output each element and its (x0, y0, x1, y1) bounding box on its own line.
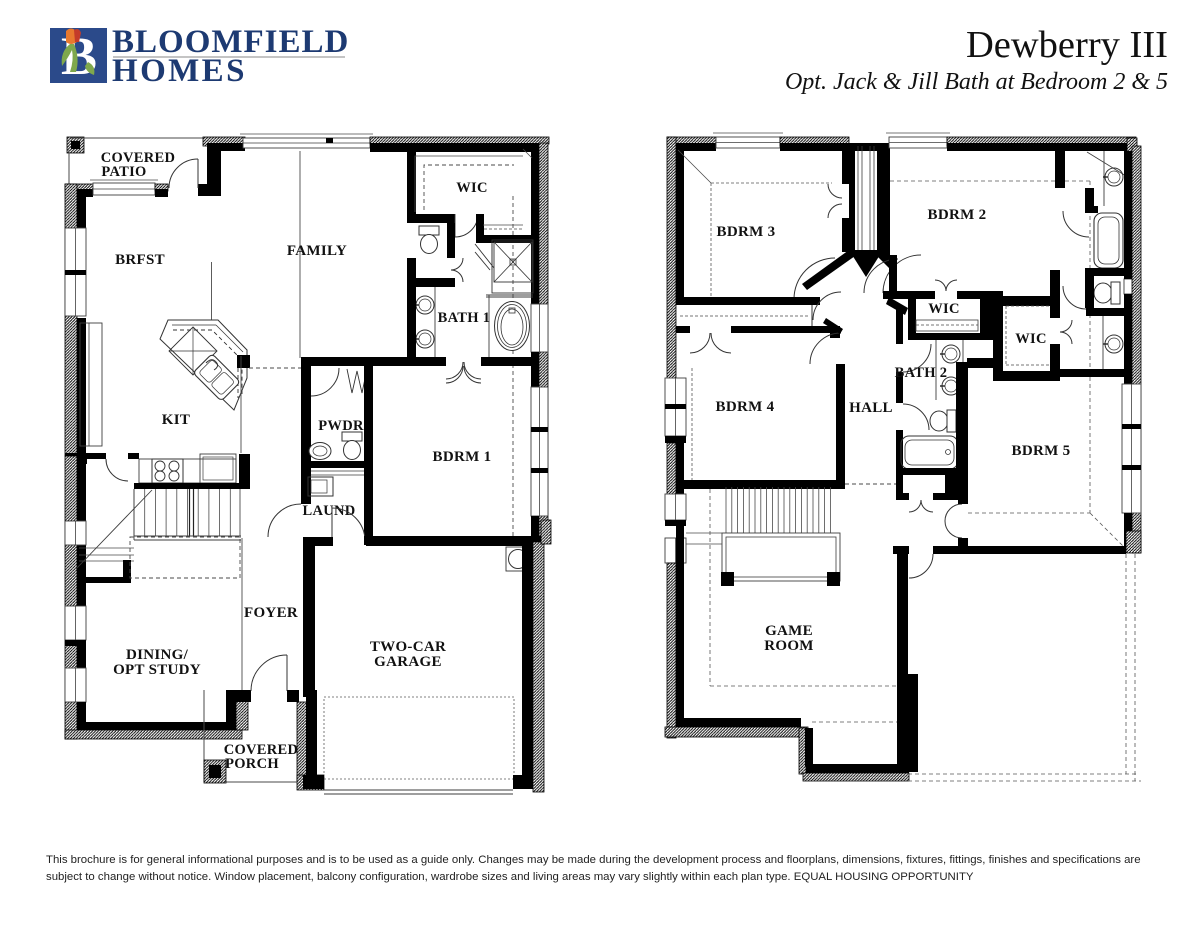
svg-text:Opt. Jack & Jill Bath at Bedro: Opt. Jack & Jill Bath at Bedroom 2 & 5 (785, 69, 1168, 95)
svg-text:WIC: WIC (928, 301, 960, 317)
svg-text:HOMES: HOMES (112, 53, 247, 89)
svg-text:OPT STUDY: OPT STUDY (113, 662, 201, 678)
svg-text:LAUND: LAUND (302, 503, 355, 519)
svg-text:KIT: KIT (162, 412, 190, 428)
svg-text:BDRM 5: BDRM 5 (1012, 443, 1071, 459)
svg-text:PATIO: PATIO (101, 164, 146, 180)
svg-text:WIC: WIC (456, 180, 488, 196)
svg-text:FOYER: FOYER (244, 605, 298, 621)
svg-text:FAMILY: FAMILY (287, 243, 347, 259)
svg-text:Dewberry III: Dewberry III (966, 24, 1168, 66)
svg-text:ROOM: ROOM (764, 638, 814, 654)
svg-text:BDRM 2: BDRM 2 (928, 207, 987, 223)
svg-text:WIC: WIC (1015, 331, 1047, 347)
svg-text:BATH 2: BATH 2 (895, 365, 948, 381)
svg-text:This brochure is for general i: This brochure is for general information… (46, 854, 1141, 866)
svg-text:BATH 1: BATH 1 (438, 310, 491, 326)
svg-text:TWO-CAR: TWO-CAR (370, 639, 446, 655)
svg-text:GARAGE: GARAGE (374, 654, 442, 670)
svg-text:BDRM 1: BDRM 1 (433, 449, 492, 465)
svg-text:GAME: GAME (765, 623, 813, 639)
svg-text:subject to change without noti: subject to change without notice. Window… (46, 871, 974, 883)
svg-text:DINING/: DINING/ (126, 647, 189, 663)
svg-text:BDRM 4: BDRM 4 (716, 399, 775, 415)
svg-text:HALL: HALL (849, 400, 893, 416)
svg-text:PORCH: PORCH (225, 756, 279, 772)
svg-text:BDRM 3: BDRM 3 (717, 224, 776, 240)
svg-text:BRFST: BRFST (115, 252, 165, 268)
